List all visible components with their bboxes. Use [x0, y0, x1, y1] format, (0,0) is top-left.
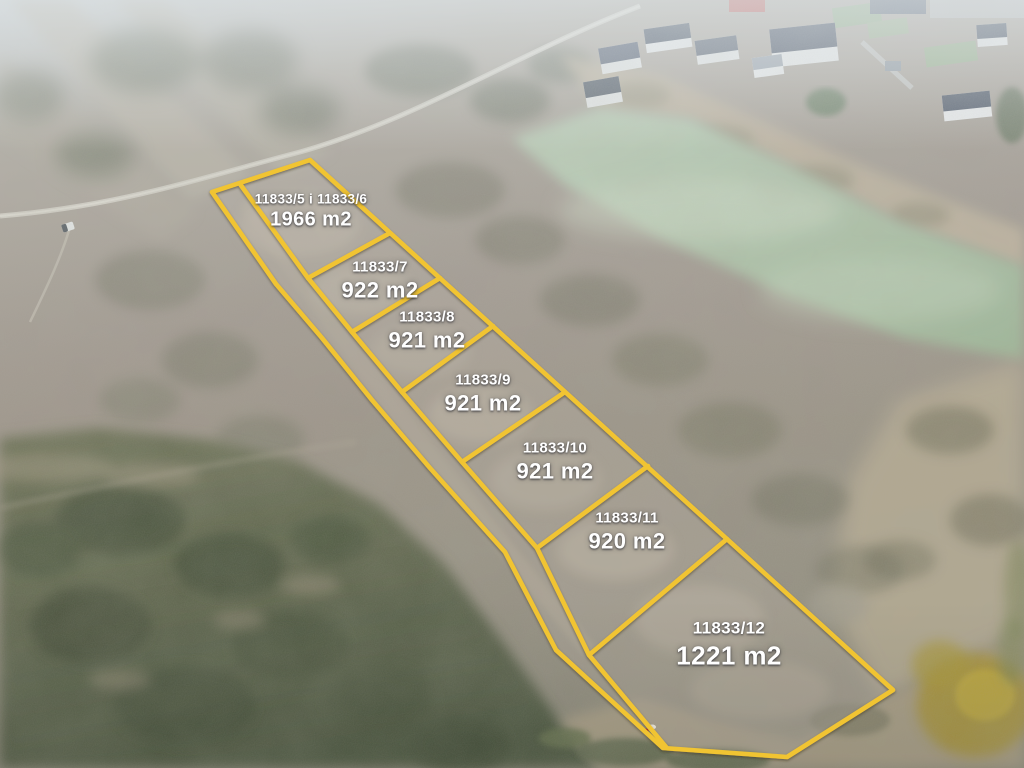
bottom-shade — [0, 600, 1024, 768]
aerial-photo-stage: 11833/5 i 11833/6 1966 m2 11833/7 922 m2… — [0, 0, 1024, 768]
aerial-photo — [0, 0, 1024, 768]
